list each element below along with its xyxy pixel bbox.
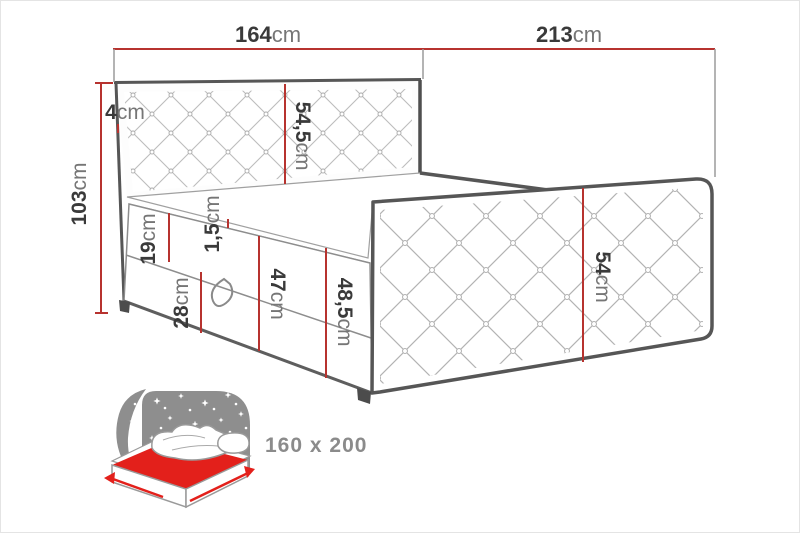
diagram-canvas: 164cm 213cm 4cm 103cm 19cm 28cm 1,5cm 54… (0, 0, 800, 533)
icon-pillow (218, 433, 249, 453)
label-base-height-rear: 48,5cm (333, 278, 356, 347)
bed-foot-left (119, 300, 130, 313)
label-lower-box: 28cm (170, 277, 193, 328)
label-mattress-lip: 1,5cm (201, 195, 224, 252)
label-upper-box: 19cm (137, 213, 160, 264)
label-headboard-cushion: 54,5cm (291, 102, 314, 171)
bed-dimensions-diagram: 164cm 213cm 4cm 103cm 19cm 28cm 1,5cm 54… (0, 0, 800, 533)
label-height-total: 103cm (68, 162, 91, 225)
label-headboard-top-edge: 4cm (105, 101, 145, 124)
label-base-height-front: 47cm (266, 268, 289, 319)
label-length-total: 213cm (536, 22, 602, 47)
label-footboard-height: 54cm (591, 251, 614, 302)
label-headboard-width: 164cm (235, 22, 301, 47)
mattress-size-badge: 160 x 200 (265, 434, 367, 457)
